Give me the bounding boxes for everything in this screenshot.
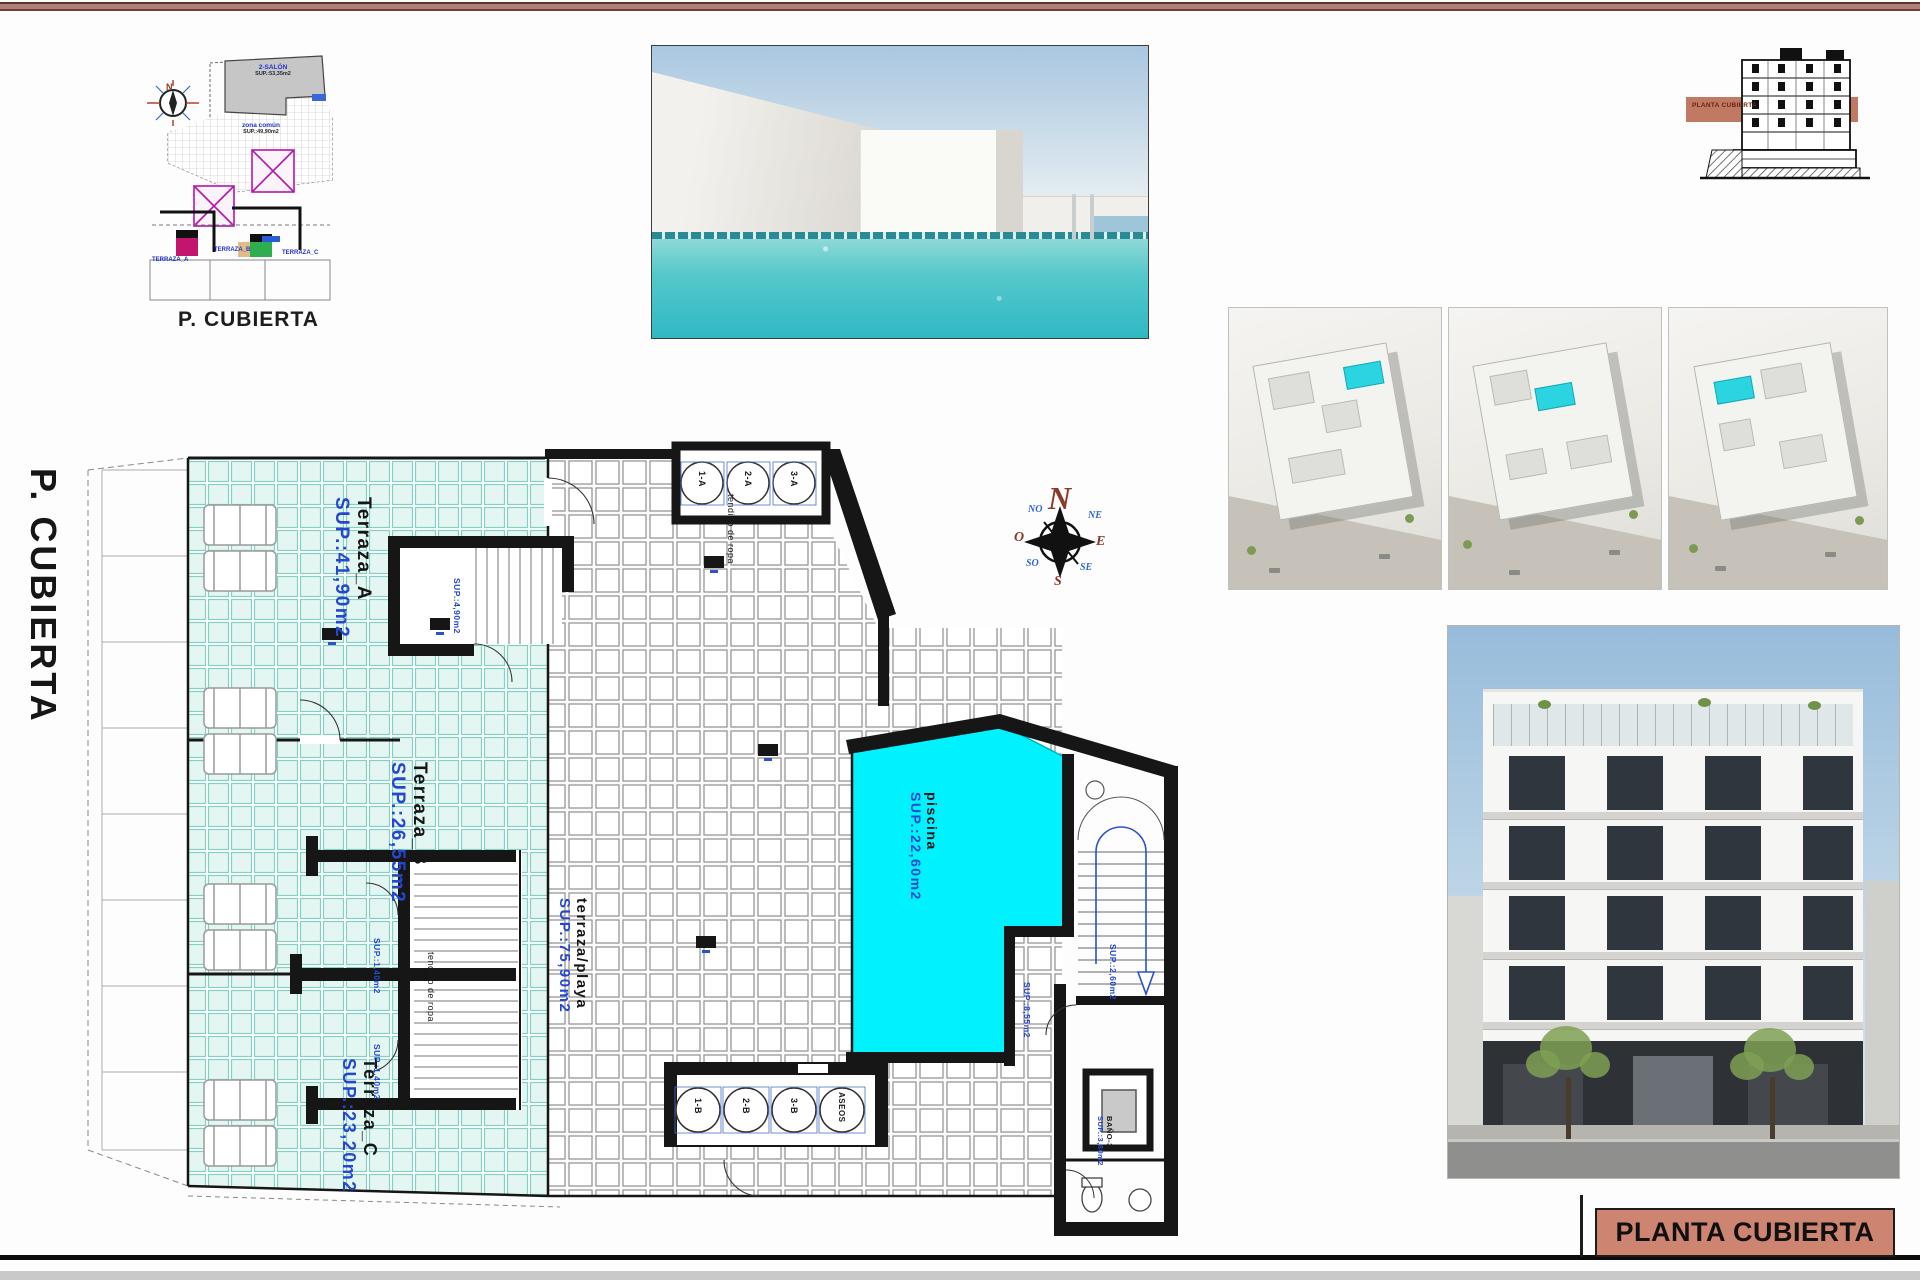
compass-west-label: O (1014, 530, 1024, 546)
bano-label: BAÑO-3 SUP.:3,80m2 (1096, 1116, 1114, 1166)
facade-render-photo (1447, 625, 1900, 1179)
mini-gray-area-label: 2-SALÓN SUP.:53,35m2 (238, 64, 308, 78)
mini-compass-icon (147, 80, 199, 126)
stair-right-sup-label: SUP.:2,60m2 (1108, 944, 1118, 1000)
stair-b-sup2-label: SUP.:1,40m2 (372, 1044, 382, 1100)
mini-terraza-b-label: TERRAZA_B (214, 247, 250, 253)
main-roof-plan (88, 446, 1178, 1236)
tendido-ropa-label-left: tendido de ropa (426, 952, 436, 1022)
aerial-render-1 (1228, 307, 1442, 590)
pool-ladder-icon (1072, 194, 1076, 240)
circle-2b-label: 2-B (741, 1098, 751, 1114)
circle-3b-label: 3-B (789, 1098, 799, 1114)
compass-sw-label: SO (1026, 558, 1039, 569)
sheet-title: PLANTA CUBIERTA (1616, 1217, 1875, 1248)
aerial-render-2 (1448, 307, 1662, 590)
compass-south-label: S (1054, 574, 1062, 590)
compass-ne-label: NE (1088, 510, 1102, 521)
circle-3a-label: 3-A (789, 471, 799, 487)
circle-1a-label: 1-A (697, 471, 707, 487)
mini-terraza-c-label: TERRAZA_C (282, 250, 318, 256)
mini-terraza-a-label: TERRAZA_A (152, 257, 188, 263)
terraza-b-label: Terraza_B SUP.:26,55m2 (386, 762, 430, 903)
terraza-playa-label: terraza/playa SUP.:75,90m2 (556, 898, 590, 1013)
pool-water (652, 239, 1148, 338)
machine-room (1066, 1072, 1164, 1212)
pool-render-photo (651, 45, 1149, 339)
tree (1770, 1077, 1775, 1139)
section-band-label: PLANTA CUBIERTA (1692, 102, 1757, 109)
plan-sheet: P. CUBIERTA Terraza_A SUP.:41,90m2 Terra… (0, 0, 1920, 1280)
room-right-sup-label: SUP.:8,55m2 (1022, 982, 1032, 1038)
sheet-title-block: PLANTA CUBIERTA (1595, 1208, 1895, 1257)
aerial-render-3 (1668, 307, 1888, 590)
section-drawing (1686, 48, 1870, 178)
compass-se-label: SE (1080, 562, 1092, 573)
stair-a-sup-label: SUP.:4,90m2 (452, 578, 462, 634)
piscina-label: piscina SUP.:22,60m2 (908, 792, 940, 901)
mini-site-plan (147, 56, 332, 300)
title-block-tick (1580, 1195, 1583, 1257)
terraza-a-label: Terraza_A SUP.:41,90m2 (330, 497, 374, 638)
mini-compass-north-label: N (166, 82, 173, 92)
mini-plan-caption: P. CUBIERTA (178, 308, 319, 332)
stair-b-sup1-label: SUP.:1,40m2 (372, 938, 382, 994)
circle-1b-label: 1-B (693, 1098, 703, 1114)
circle-2a-label: 2-A (743, 471, 753, 487)
tree (1566, 1077, 1571, 1139)
tendido-ropa-label-top: tendido de ropa (726, 494, 736, 564)
circle-aseos-label: ASEOS (837, 1092, 846, 1123)
mini-common-area-label: zona común SUP.:49,90m2 (226, 122, 296, 136)
plan-side-title: P. CUBIERTA (22, 468, 64, 724)
compass-nw-label: NO (1028, 504, 1042, 515)
compass-north-label: N (1048, 480, 1071, 517)
compass-east-label: E (1096, 534, 1105, 550)
